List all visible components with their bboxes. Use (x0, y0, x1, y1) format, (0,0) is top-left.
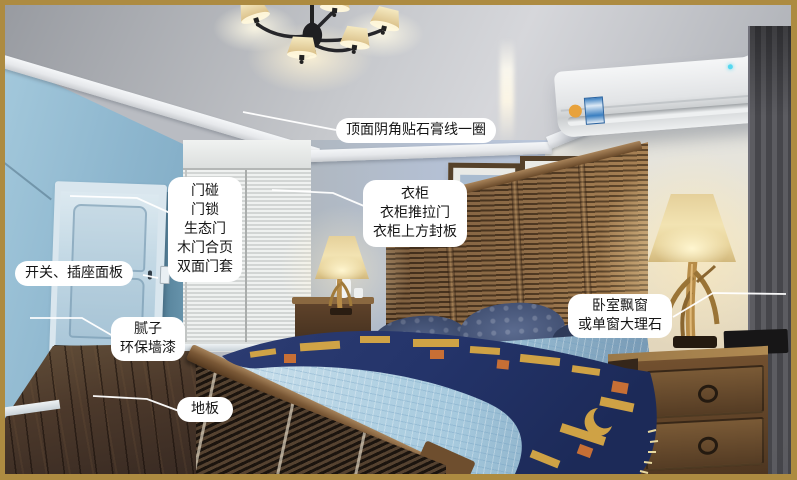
callout-text: 双面门套 (177, 258, 233, 277)
callout-bay-window-label: 卧室飘窗 或单窗大理石 (568, 294, 672, 338)
callout-text: 衣柜上方封板 (373, 223, 457, 242)
callout-switch-label: 开关、插座面板 (15, 261, 133, 286)
callout-text: 地板 (191, 400, 219, 419)
callout-text: 衣柜 (373, 185, 457, 204)
callout-ceiling-label: 顶面阴角贴石膏线一圈 (336, 118, 496, 143)
callout-text: 卧室飘窗 (578, 297, 662, 316)
callout-wardrobe-label: 衣柜 衣柜推拉门 衣柜上方封板 (363, 180, 467, 247)
callout-text: 生态门 (177, 220, 233, 239)
drawer-ring-pull (698, 384, 718, 403)
callout-text: 木门合页 (177, 239, 233, 258)
annotated-bedroom-photo: 顶面阴角贴石膏线一圈 门碰 门锁 生态门 木门合页 双面门套 开关、插座面板 腻… (0, 0, 797, 480)
door-handle (148, 270, 152, 279)
light-flare (500, 38, 514, 143)
callout-text: 衣柜推拉门 (373, 204, 457, 223)
callout-wall-paint-label: 腻子 环保墙漆 (111, 317, 185, 361)
callout-floor-label: 地板 (177, 397, 233, 422)
callout-text: 门锁 (177, 201, 233, 220)
callout-text: 或单窗大理石 (578, 316, 662, 335)
drawer-ring-pull (698, 436, 718, 455)
chandelier (225, 0, 405, 100)
callout-text: 环保墙漆 (120, 339, 176, 358)
callout-door-label: 门碰 门锁 生态门 木门合页 双面门套 (168, 177, 242, 282)
callout-text: 腻子 (120, 320, 176, 339)
callout-text: 顶面阴角贴石膏线一圈 (346, 121, 486, 140)
ac-energy-label (584, 96, 605, 124)
ac-led-indicator (728, 64, 733, 69)
callout-text: 开关、插座面板 (25, 264, 123, 283)
callout-text: 门碰 (177, 182, 233, 201)
wardrobe-top-board (183, 140, 311, 170)
